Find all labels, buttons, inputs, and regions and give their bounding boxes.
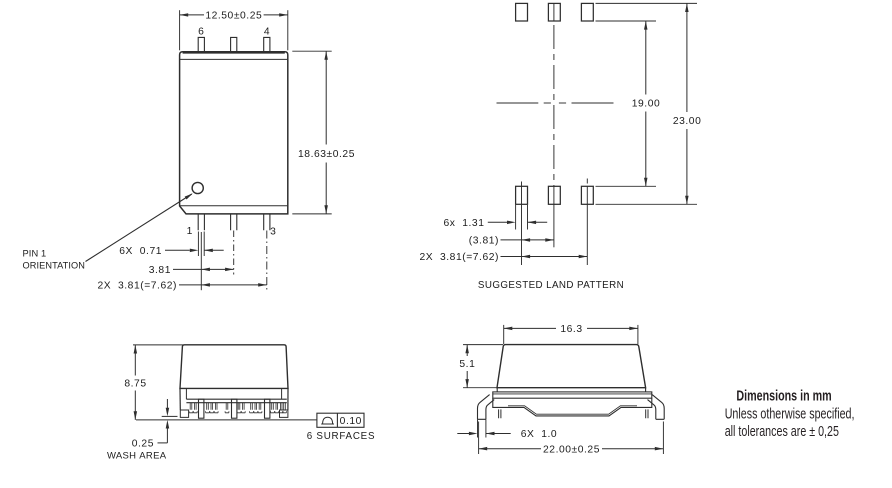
svg-text:(3.81): (3.81)	[469, 235, 499, 246]
svg-text:1: 1	[187, 226, 193, 237]
svg-text:0.25: 0.25	[132, 439, 154, 450]
svg-text:PIN 1: PIN 1	[23, 249, 47, 259]
svg-text:5.1: 5.1	[459, 359, 475, 370]
svg-text:2X 3.81(=7.62): 2X 3.81(=7.62)	[97, 280, 177, 291]
svg-text:12.50±0.25: 12.50±0.25	[205, 11, 262, 22]
svg-text:ORIENTATION: ORIENTATION	[23, 260, 86, 270]
svg-text:3: 3	[270, 227, 276, 238]
svg-text:16.3: 16.3	[560, 324, 582, 335]
svg-text:23.00: 23.00	[673, 116, 702, 127]
svg-text:WASH AREA: WASH AREA	[107, 450, 167, 461]
svg-text:all tolerances are ± 0,25: all tolerances are ± 0,25	[725, 423, 839, 439]
svg-text:SUGGESTED LAND PATTERN: SUGGESTED LAND PATTERN	[478, 280, 624, 291]
svg-text:18.63±0.25: 18.63±0.25	[298, 149, 355, 160]
svg-text:0.10: 0.10	[340, 416, 362, 427]
svg-text:Dimensions in mm: Dimensions in mm	[736, 388, 831, 404]
svg-text:3.81: 3.81	[149, 265, 171, 276]
svg-text:6X 1.0: 6X 1.0	[521, 429, 557, 440]
svg-text:4: 4	[264, 27, 270, 38]
svg-text:Unless otherwise specified,: Unless otherwise specified,	[725, 406, 855, 422]
svg-text:22.00±0.25: 22.00±0.25	[543, 444, 600, 455]
svg-text:8.75: 8.75	[124, 379, 146, 390]
svg-text:6 SURFACES: 6 SURFACES	[307, 431, 375, 442]
svg-text:2X 3.81(=7.62): 2X 3.81(=7.62)	[419, 252, 499, 263]
svg-text:6x 1.31: 6x 1.31	[443, 218, 484, 229]
svg-text:19.00: 19.00	[632, 99, 661, 110]
svg-text:6: 6	[198, 27, 204, 38]
svg-text:6X 0.71: 6X 0.71	[119, 246, 162, 257]
